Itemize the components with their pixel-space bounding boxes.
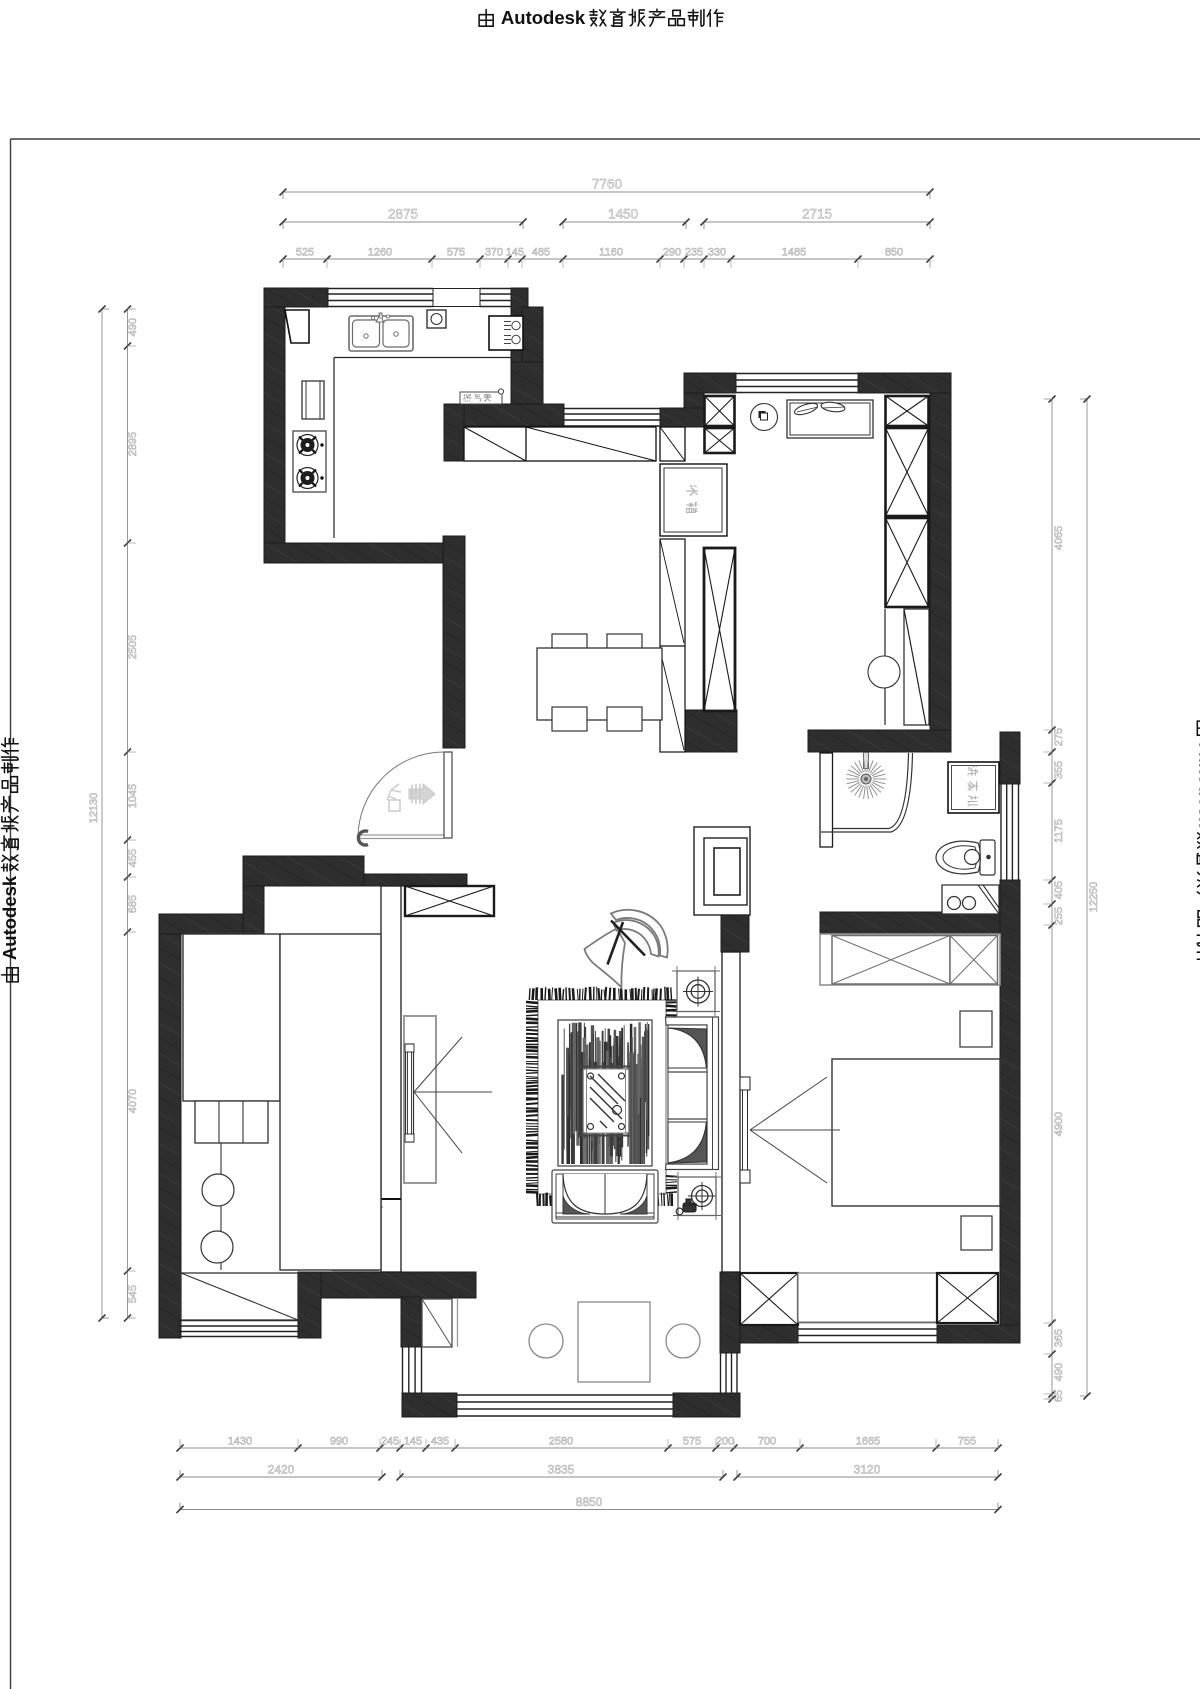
svg-text:1450: 1450 bbox=[608, 207, 638, 222]
svg-text:12250: 12250 bbox=[1088, 882, 1100, 913]
svg-text:545: 545 bbox=[127, 1285, 139, 1303]
svg-text:145: 145 bbox=[404, 1436, 422, 1448]
svg-text:1045: 1045 bbox=[127, 784, 139, 808]
svg-text:290: 290 bbox=[663, 247, 681, 259]
svg-text:3835: 3835 bbox=[548, 1463, 575, 1477]
svg-text:2580: 2580 bbox=[549, 1436, 573, 1448]
svg-text:2505: 2505 bbox=[127, 635, 139, 659]
svg-text:4065: 4065 bbox=[1053, 526, 1065, 550]
svg-text:7760: 7760 bbox=[592, 177, 622, 192]
svg-text:65: 65 bbox=[1053, 1390, 1065, 1402]
svg-text:200: 200 bbox=[716, 1436, 734, 1448]
svg-text:1665: 1665 bbox=[856, 1436, 880, 1448]
svg-text:990: 990 bbox=[330, 1436, 348, 1448]
svg-text:685: 685 bbox=[127, 895, 139, 913]
svg-text:275: 275 bbox=[1053, 728, 1065, 746]
svg-text:490: 490 bbox=[1053, 1363, 1065, 1381]
svg-text:1175: 1175 bbox=[1053, 819, 1065, 843]
svg-text:1485: 1485 bbox=[782, 247, 806, 259]
svg-text:1160: 1160 bbox=[599, 247, 623, 259]
svg-text:1260: 1260 bbox=[368, 247, 392, 259]
svg-text:490: 490 bbox=[127, 318, 139, 336]
svg-text:370: 370 bbox=[485, 247, 503, 259]
svg-text:8850: 8850 bbox=[576, 1495, 603, 1509]
svg-text:850: 850 bbox=[885, 247, 903, 259]
svg-text:485: 485 bbox=[532, 247, 550, 259]
svg-text:4900: 4900 bbox=[1053, 1112, 1065, 1136]
svg-text:2875: 2875 bbox=[388, 207, 418, 222]
svg-text:1430: 1430 bbox=[228, 1436, 252, 1448]
svg-text:12130: 12130 bbox=[88, 793, 100, 824]
svg-text:575: 575 bbox=[683, 1436, 701, 1448]
svg-text:255: 255 bbox=[1053, 907, 1065, 925]
svg-text:Autodesk: Autodesk bbox=[501, 7, 586, 28]
svg-text:405: 405 bbox=[1053, 881, 1065, 899]
svg-text:525: 525 bbox=[296, 247, 314, 259]
svg-text:Autodesk: Autodesk bbox=[0, 875, 20, 960]
svg-text:455: 455 bbox=[127, 849, 139, 867]
svg-text:435: 435 bbox=[431, 1436, 449, 1448]
svg-text:4070: 4070 bbox=[127, 1089, 139, 1113]
svg-text:2715: 2715 bbox=[802, 207, 832, 222]
svg-text:245: 245 bbox=[381, 1436, 399, 1448]
svg-text:235: 235 bbox=[685, 247, 703, 259]
svg-text:330: 330 bbox=[708, 247, 726, 259]
svg-text:Autodesk: Autodesk bbox=[1196, 743, 1200, 828]
svg-text:575: 575 bbox=[447, 247, 465, 259]
svg-text:145: 145 bbox=[506, 247, 524, 259]
svg-text:365: 365 bbox=[1053, 1329, 1065, 1347]
svg-text:700: 700 bbox=[758, 1436, 776, 1448]
svg-text:2420: 2420 bbox=[268, 1463, 295, 1477]
svg-text:355: 355 bbox=[1053, 761, 1065, 779]
svg-text:755: 755 bbox=[958, 1436, 976, 1448]
svg-text:2895: 2895 bbox=[127, 432, 139, 456]
svg-text:3120: 3120 bbox=[854, 1463, 881, 1477]
